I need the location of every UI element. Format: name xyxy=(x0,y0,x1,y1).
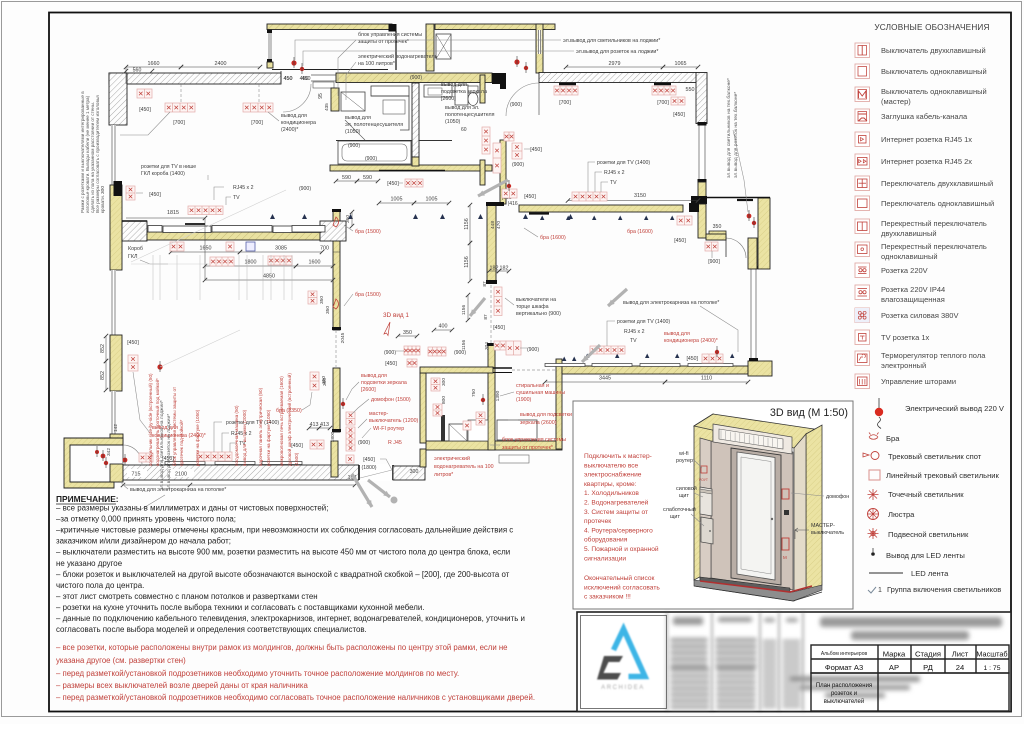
svg-text:Перекрестный переключатель: Перекрестный переключатель xyxy=(881,242,987,251)
svg-text:1110: 1110 xyxy=(701,376,712,382)
svg-text:Интернет розетка RJ45 1х: Интернет розетка RJ45 1х xyxy=(881,135,972,144)
svg-text:2100: 2100 xyxy=(175,472,187,478)
svg-text:роутер: роутер xyxy=(676,458,693,464)
svg-text:вывод для электрокарниза на по: вывод для электрокарниза на потолке* xyxy=(130,487,226,493)
svg-text:МАСТЕР-: МАСТЕР- xyxy=(811,523,835,529)
svg-text:TV: TV xyxy=(630,338,637,344)
svg-text:1800: 1800 xyxy=(330,431,336,442)
svg-text:2. Водонагревателей: 2. Водонагревателей xyxy=(584,499,649,507)
svg-text:– блоки розеток и выключателей: – блоки розеток и выключателей на другой… xyxy=(56,570,510,579)
svg-text:блок управления системы защиты: блок управления системы защиты от xyxy=(172,386,177,466)
svg-text:1 : 75: 1 : 75 xyxy=(983,665,1000,672)
svg-text:Лист: Лист xyxy=(952,650,969,659)
svg-text:микроволновая печь встраиваема: микроволновая печь встраиваемая (1600) xyxy=(279,376,284,466)
svg-text:300: 300 xyxy=(441,378,447,386)
svg-text:не указано другое: не указано другое xyxy=(56,559,123,568)
svg-text:3. Систем защиты от: 3. Систем защиты от xyxy=(584,509,648,516)
svg-text:3D вид 1: 3D вид 1 xyxy=(383,312,409,319)
svg-text:–за отметку 0,000 принять уров: –за отметку 0,000 принять уровень чистог… xyxy=(56,515,236,524)
svg-text:розетки на фартуке (1050): розетки на фартуке (1050) xyxy=(195,409,200,466)
svg-text:чистого пола до центра.: чистого пола до центра. xyxy=(56,581,144,590)
svg-text:3445: 3445 xyxy=(599,376,611,382)
svg-text:[450]: [450] xyxy=(291,443,303,449)
svg-text:2400: 2400 xyxy=(215,61,227,67)
svg-text:1065: 1065 xyxy=(675,61,687,67)
svg-text:Перекрестный переключатель: Перекрестный переключатель xyxy=(881,219,987,228)
svg-text:1650: 1650 xyxy=(200,246,212,252)
svg-text:Вывод для LED ленты: Вывод для LED ленты xyxy=(886,551,965,560)
svg-text:TV: TV xyxy=(233,195,240,201)
svg-text:вывод для: вывод для xyxy=(664,331,690,337)
svg-text:852: 852 xyxy=(100,371,106,380)
svg-text:413: 413 xyxy=(310,422,319,428)
svg-text:бра (1600): бра (1600) xyxy=(540,235,566,241)
svg-text:182: 182 xyxy=(500,266,509,272)
svg-text:1005: 1005 xyxy=(391,197,403,203)
svg-text:400: 400 xyxy=(439,324,448,330)
svg-text:силовой: силовой xyxy=(676,485,697,492)
svg-text:вывод для подсветки: вывод для подсветки xyxy=(520,412,572,418)
svg-text:TV: TV xyxy=(610,180,617,186)
svg-text:выключателей: выключателей xyxy=(824,698,864,705)
svg-text:вывод для: вывод для xyxy=(345,115,371,121)
svg-text:Переключатель одноклавишный: Переключатель одноклавишный xyxy=(881,199,994,208)
svg-text:выключатель (1200): выключатель (1200) xyxy=(369,418,419,424)
svg-text:щит: щит xyxy=(679,493,689,499)
svg-text:300: 300 xyxy=(100,186,106,194)
svg-text:План расположения: План расположения xyxy=(816,683,872,689)
svg-text:1800: 1800 xyxy=(245,260,257,266)
svg-text:Выключатель одноклавишный: Выключатель одноклавишный xyxy=(881,87,987,96)
svg-text:[450]: [450] xyxy=(493,325,505,331)
svg-text:подсветка зеркала: подсветка зеркала xyxy=(441,89,487,95)
svg-text:– розетки на кухне уточнить по: – розетки на кухне уточнить после выбора… xyxy=(56,603,425,612)
svg-text:|416: |416 xyxy=(508,201,518,207)
svg-text:М: М xyxy=(783,555,787,560)
svg-text:590: 590 xyxy=(363,175,372,181)
svg-text:электрический водонагреватель: электрический водонагреватель xyxy=(358,53,438,60)
svg-text:[700]: [700] xyxy=(251,120,263,126)
svg-text:Выключатель двухклавишный: Выключатель двухклавишный xyxy=(881,46,986,55)
svg-text:4850: 4850 xyxy=(263,274,275,280)
svg-text:3D вид (М 1:50): 3D вид (М 1:50) xyxy=(770,407,848,419)
svg-text:(900): (900) xyxy=(365,156,377,162)
svg-text:– этот лист смотреть совместно: – этот лист смотреть совместно с планом … xyxy=(56,592,318,601)
svg-text:(900): (900) xyxy=(384,350,396,356)
svg-text:24: 24 xyxy=(956,663,964,672)
svg-text:Розетка 220V: Розетка 220V xyxy=(881,266,928,275)
svg-text:182: 182 xyxy=(490,266,499,272)
svg-text:ГКЛ короба (1400): ГКЛ короба (1400) xyxy=(141,171,185,177)
svg-text:розеток и: розеток и xyxy=(831,691,857,697)
svg-text:LED лента: LED лента xyxy=(911,569,949,578)
svg-text:холодильник side-by-side (встр: холодильник side-by-side (встроенный) (5… xyxy=(147,373,153,466)
svg-text:блок управления системы: блок управления системы xyxy=(502,437,566,443)
svg-text:350: 350 xyxy=(322,378,328,386)
svg-text:Трековый светильник спот: Трековый светильник спот xyxy=(888,452,982,461)
svg-text:Интернет розетка RJ45 2х: Интернет розетка RJ45 2х xyxy=(881,157,972,166)
svg-text:413: 413 xyxy=(320,422,329,428)
svg-text:варочная панель электрическая: варочная панель электрическая (50) xyxy=(258,387,263,466)
svg-text:(900): (900) xyxy=(527,347,539,353)
svg-text:Короб: Короб xyxy=(128,246,143,252)
svg-text:– данные по подключению кабель: – данные по подключению кабельного телев… xyxy=(56,614,525,623)
svg-text:исключений согласовать: исключений согласовать xyxy=(584,583,660,591)
svg-text:вывод для: вывод для xyxy=(361,373,387,379)
svg-text:300: 300 xyxy=(410,469,419,475)
svg-text:домофон (1500): домофон (1500) xyxy=(371,397,411,403)
svg-text:бра (1600): бра (1600) xyxy=(627,229,653,235)
svg-text:ГКЛ: ГКЛ xyxy=(128,254,138,260)
svg-text:АР: АР xyxy=(889,663,899,672)
svg-text:[450]: [450] xyxy=(673,112,685,118)
svg-text:согласовать после выбора модел: согласовать после выбора моделей и опред… xyxy=(56,625,367,634)
svg-text:Розетка силовая 380V: Розетка силовая 380V xyxy=(881,311,958,320)
svg-text:[450]: [450] xyxy=(139,107,151,113)
svg-text:Бра: Бра xyxy=(886,434,900,443)
svg-text:(900): (900) xyxy=(454,350,466,356)
svg-text:ПРИМЕЧАНИЕ:: ПРИМЕЧАНИЕ: xyxy=(56,494,119,504)
svg-text:– все размеры указаны в миллим: – все размеры указаны в миллиметрах и да… xyxy=(56,504,328,513)
svg-text:кондиционера: кондиционера xyxy=(281,120,316,126)
svg-text:(2400)*: (2400)* xyxy=(281,127,298,133)
svg-text:Марка: Марка xyxy=(883,650,906,659)
svg-text:450: 450 xyxy=(302,76,311,82)
svg-text:3085: 3085 xyxy=(275,246,287,252)
svg-text:[700]: [700] xyxy=(657,100,669,106)
svg-text:вывод для: вывод для xyxy=(281,113,307,119)
svg-text:бра (1500): бра (1500) xyxy=(355,229,381,235)
svg-text:бра (1500): бра (1500) xyxy=(355,292,381,298)
svg-text:470: 470 xyxy=(496,221,502,229)
svg-text:щит: щит xyxy=(670,514,680,520)
svg-text:водонагреватель на 100: водонагреватель на 100 xyxy=(434,464,494,470)
svg-text:РД: РД xyxy=(923,663,933,672)
svg-text:Окончательный список: Окончательный список xyxy=(584,574,655,582)
svg-text:РОУТ: РОУТ xyxy=(699,478,708,482)
svg-text:– все розетки, которые располо: – все розетки, которые расположены внутр… xyxy=(56,643,508,652)
svg-text:750: 750 xyxy=(471,389,477,397)
svg-text:блок управления системы: блок управления системы xyxy=(358,32,422,38)
svg-text:(900): (900) xyxy=(510,102,522,108)
svg-text:RJ45 x 2: RJ45 x 2 xyxy=(604,170,625,176)
svg-text:[450]: [450] xyxy=(149,192,161,198)
svg-text:1660: 1660 xyxy=(148,61,160,67)
svg-text:одноклавишный: одноклавишный xyxy=(881,252,938,261)
svg-text:304: 304 xyxy=(484,342,490,350)
svg-text:[700]: [700] xyxy=(173,120,185,126)
svg-text:указана другое (см. развертки: указана другое (см. развертки стен) xyxy=(56,656,186,665)
svg-text:Заглушка кабель-канала: Заглушка кабель-канала xyxy=(881,112,968,121)
svg-text:Люстра: Люстра xyxy=(888,510,915,519)
svg-text:(900): (900) xyxy=(299,186,311,192)
svg-text:электронный: электронный xyxy=(881,361,926,370)
svg-text:350: 350 xyxy=(403,330,412,336)
svg-text:1600: 1600 xyxy=(309,260,321,266)
svg-text:852: 852 xyxy=(100,344,106,353)
svg-text:– выключатели разместить на вы: – выключатели разместить на высоте 900 м… xyxy=(56,548,510,557)
svg-text:сушильная машины: сушильная машины xyxy=(516,390,565,396)
svg-text:R J45: R J45 xyxy=(388,440,402,446)
svg-text:350: 350 xyxy=(319,296,325,304)
svg-text:1005: 1005 xyxy=(426,197,438,203)
svg-text:[700]: [700] xyxy=(559,100,571,106)
svg-text:wi-fi: wi-fi xyxy=(678,451,689,457)
svg-text:350: 350 xyxy=(713,224,722,230)
svg-text:вывод для электрокарниза на по: вывод для электрокарниза на потолке* xyxy=(623,300,719,306)
svg-text:Управление шторами: Управление шторами xyxy=(881,377,956,386)
svg-text:[450]: [450] xyxy=(387,181,399,187)
svg-text:заказчиком и/или дизайнером до: заказчиком и/или дизайнером до начала ра… xyxy=(56,537,231,546)
svg-text:Электрический вывод 220 V: Электрический вывод 220 V xyxy=(905,404,1005,413)
svg-text:вывод для: вывод для xyxy=(441,82,467,88)
svg-text:(1900): (1900) xyxy=(516,397,532,403)
svg-text:кровати.: кровати. xyxy=(100,195,105,213)
svg-text:(900): (900) xyxy=(410,75,422,81)
svg-text:вывод для вытяжки (2000): вывод для вытяжки (2000) xyxy=(242,409,247,466)
svg-text:вертикально (900): вертикально (900) xyxy=(516,311,561,317)
svg-text:[2600]: [2600] xyxy=(441,96,456,102)
svg-text:Переключатель двухклавишный: Переключатель двухклавишный xyxy=(881,179,993,188)
svg-text:TV розетка 1х: TV розетка 1х xyxy=(881,333,930,342)
svg-text:(мастер): (мастер) xyxy=(881,97,911,106)
svg-text:эл. полотенцесушителя: эл. полотенцесушителя xyxy=(345,122,403,128)
svg-text:Подвесной светильник: Подвесной светильник xyxy=(888,530,969,539)
svg-text:домофон: домофон xyxy=(826,494,849,500)
svg-text:590: 590 xyxy=(342,175,351,181)
svg-text:электрический: электрический xyxy=(434,455,470,462)
svg-text:Точечный светильник: Точечный светильник xyxy=(888,490,964,499)
svg-text:розетки на фартуке (1050): розетки на фартуке (1050) xyxy=(266,409,271,466)
svg-text:Подключить к мастер-: Подключить к мастер- xyxy=(584,453,652,460)
svg-text:[450]: [450] xyxy=(127,340,139,346)
svg-text:зеркала (2600): зеркала (2600) xyxy=(520,420,557,426)
svg-text:95: 95 xyxy=(318,93,324,99)
svg-text:Масштаб: Масштаб xyxy=(976,650,1007,659)
svg-text:1156: 1156 xyxy=(464,218,470,230)
svg-text:715: 715 xyxy=(132,472,141,478)
svg-text:87: 87 xyxy=(483,314,489,320)
svg-text:розетки для TV (1400): розетки для TV (1400) xyxy=(597,160,650,166)
svg-text:вывод для эл.: вывод для эл. xyxy=(445,105,479,111)
svg-text:– перед разметкой/установкой п: – перед разметкой/установкой подрозетник… xyxy=(56,693,535,702)
svg-text:1: 1 xyxy=(878,587,882,594)
svg-text:[450]: [450] xyxy=(385,361,397,367)
svg-text:[450]: [450] xyxy=(524,194,536,200)
svg-text:360: 360 xyxy=(345,215,351,223)
svg-text:с заказчиком !!!: с заказчиком !!! xyxy=(584,594,631,601)
svg-text:350: 350 xyxy=(325,306,331,314)
svg-text:[2600]: [2600] xyxy=(361,387,376,393)
svg-text:полотенцесушителя: полотенцесушителя xyxy=(445,112,495,118)
svg-text:2979: 2979 xyxy=(609,61,621,67)
svg-text:Розетка 220V IP44: Розетка 220V IP44 xyxy=(881,285,945,294)
svg-text:выключатели на: выключатели на xyxy=(516,297,556,303)
svg-text:розетки для TV в нише: розетки для TV в нише xyxy=(141,164,196,170)
svg-text:342: 342 xyxy=(106,448,112,456)
svg-text:1. Холодильников: 1. Холодильников xyxy=(584,490,639,497)
svg-text:(900): (900) xyxy=(512,162,524,168)
svg-text:на 100 литров*: на 100 литров* xyxy=(358,61,395,67)
svg-text:ARCHIDEA: ARCHIDEA xyxy=(601,685,645,691)
svg-text:448: 448 xyxy=(490,221,496,229)
svg-text:эл.вывод для светильников на л: эл.вывод для светильников на лоджии* xyxy=(563,38,660,44)
svg-text:выключателю все: выключателю все xyxy=(584,462,639,469)
svg-text:эл.вывод для светильников на т: эл.вывод для светильников на тех.балконе… xyxy=(726,78,732,178)
svg-text:слаботочный: слаботочный xyxy=(663,506,696,513)
svg-text:[450]: [450] xyxy=(530,147,542,153)
svg-text:квартиры, кроме:: квартиры, кроме: xyxy=(584,481,637,488)
svg-text:142: 142 xyxy=(113,424,119,432)
svg-text:влагозащищенная: влагозащищенная xyxy=(881,295,945,304)
svg-text:435: 435 xyxy=(324,103,329,111)
svg-text:посудомоечная машина (50): посудомоечная машина (50) xyxy=(234,405,239,466)
svg-text:– перед разметкой/установкой п: – перед разметкой/установкой подрозетник… xyxy=(56,669,459,678)
svg-text:1815: 1815 xyxy=(167,210,179,216)
svg-text:[450]: [450] xyxy=(363,457,375,463)
svg-text:Альбом интерьеров: Альбом интерьеров xyxy=(821,651,868,657)
svg-text:духовой шкаф электрический (вс: духовой шкаф электрический (встроенный) xyxy=(286,373,292,466)
svg-text:Стадия: Стадия xyxy=(915,650,941,659)
svg-text:Терморегулятор теплого пола: Терморегулятор теплого пола xyxy=(881,351,986,360)
svg-text:60: 60 xyxy=(461,127,467,133)
svg-text:(1800): (1800) xyxy=(362,465,377,471)
svg-text:550: 550 xyxy=(686,87,695,93)
svg-text:2045: 2045 xyxy=(340,332,346,343)
svg-text:700: 700 xyxy=(320,246,329,252)
svg-text:Выключатель одноклавишный: Выключатель одноклавишный xyxy=(881,67,987,76)
svg-text:560: 560 xyxy=(133,68,142,74)
svg-text:450: 450 xyxy=(284,76,293,82)
svg-text:1156: 1156 xyxy=(461,340,467,351)
svg-text:мастер-: мастер- xyxy=(369,411,388,417)
svg-text:[450]: [450] xyxy=(674,238,686,244)
svg-text:(1050): (1050) xyxy=(345,129,361,135)
svg-text:3150: 3150 xyxy=(634,193,646,199)
svg-text:розетки для TV (1400): розетки для TV (1400) xyxy=(617,319,670,325)
svg-text:защиты от протечек*: защиты от протечек* xyxy=(502,445,553,451)
svg-text:(1600): (1600) xyxy=(294,452,299,466)
svg-text:(900): (900) xyxy=(358,440,370,446)
svg-text:WI-FI роутер: WI-FI роутер xyxy=(373,426,404,432)
svg-text:стиральная и: стиральная и xyxy=(516,383,549,389)
svg-text:Линейный трековый светильник: Линейный трековый светильник xyxy=(886,471,1000,480)
svg-text:оборудования: оборудования xyxy=(584,536,628,544)
svg-text:сигнализации: сигнализации xyxy=(584,555,626,562)
svg-text:(1050): (1050) xyxy=(445,119,461,125)
svg-text:– размеры всех выключателей во: – размеры всех выключателей возле дверей… xyxy=(56,681,308,690)
svg-text:протечек: протечек xyxy=(584,518,611,525)
svg-text:1156: 1156 xyxy=(461,305,467,316)
svg-text:87: 87 xyxy=(482,281,488,287)
svg-text:двухклавишный: двухклавишный xyxy=(881,229,937,238)
svg-text:выключатель: выключатель xyxy=(811,530,844,536)
svg-text:–критичные чистовые размеры от: –критичные чистовые размеры отмечены кра… xyxy=(56,526,513,535)
svg-text:литров*: литров* xyxy=(434,472,453,478)
svg-text:торце шкафа: торце шкафа xyxy=(516,304,549,310)
svg-text:800: 800 xyxy=(441,396,447,404)
svg-text:4. Роутера/серверного: 4. Роутера/серверного xyxy=(584,527,653,534)
svg-text:подсветки зеркала: подсветки зеркала xyxy=(361,380,407,386)
svg-text:протечек под мойкой*: протечек под мойкой* xyxy=(178,419,184,466)
svg-text:1156: 1156 xyxy=(464,256,470,268)
svg-text:Формат А3: Формат А3 xyxy=(825,663,863,672)
svg-text:[450]: [450] xyxy=(686,356,698,362)
svg-text:RJ45 x 2: RJ45 x 2 xyxy=(233,185,254,191)
svg-text:Группа включения светильников: Группа включения светильников xyxy=(887,585,1001,594)
svg-text:УСЛОВНЫЕ ОБОЗНАЧЕНИЯ: УСЛОВНЫЕ ОБОЗНАЧЕНИЯ xyxy=(874,23,989,32)
svg-text:кондиционера (2400)*: кондиционера (2400)* xyxy=(664,338,718,344)
svg-text:электроснабжение: электроснабжение xyxy=(584,471,642,479)
svg-text:5. Пожарной и охранной: 5. Пожарной и охранной xyxy=(584,545,659,553)
svg-text:(900): (900) xyxy=(348,143,360,149)
svg-text:[900]: [900] xyxy=(708,259,720,265)
svg-text:RJ45 x 2: RJ45 x 2 xyxy=(624,329,645,335)
svg-text:эл.вывод для розеток на лоджии: эл.вывод для розеток на лоджии* xyxy=(576,49,658,55)
svg-text:водонагреватель проточный под: водонагреватель проточный под мойкой* xyxy=(154,378,160,466)
